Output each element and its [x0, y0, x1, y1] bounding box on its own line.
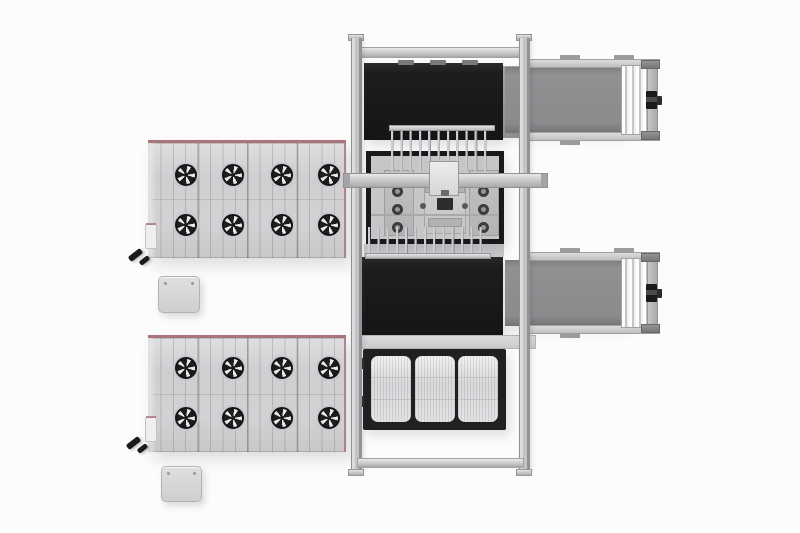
end-bracket: [641, 324, 660, 333]
center-pivot-icon: [462, 203, 468, 209]
fan-icon: [175, 214, 197, 236]
rail-tab: [560, 140, 580, 145]
end-bracket: [641, 253, 660, 262]
motor-band: [646, 97, 657, 102]
motor-band: [646, 290, 657, 295]
toolhead-detail: [441, 190, 449, 196]
cooling-panel-top: [148, 140, 346, 258]
rail-tab: [560, 55, 580, 60]
motor-shaft: [657, 96, 662, 105]
end-bracket: [641, 131, 660, 140]
suction-ring-icon: [478, 204, 489, 215]
fan-icon: [271, 214, 293, 236]
fan-icon: [318, 214, 340, 236]
end-bracket: [641, 60, 660, 69]
fan-icon: [318, 164, 340, 186]
pallet-station: [363, 349, 506, 430]
table-guide-rail: [371, 214, 499, 216]
rail-tab: [614, 248, 634, 253]
frame-bottom-beam: [357, 458, 524, 468]
control-box-bottom: [161, 466, 202, 502]
frame-left-rail: [351, 38, 362, 474]
roller-end-section: [621, 65, 648, 135]
clamp-bar-icon: [137, 443, 149, 454]
glass-panel: [458, 356, 498, 422]
center-pivot-icon: [420, 203, 426, 209]
comb-bar: [365, 253, 491, 259]
conveyor-tab: [462, 60, 478, 65]
motor-shaft: [657, 289, 662, 298]
screw-icon: [167, 472, 170, 475]
control-box-top: [158, 276, 200, 313]
fan-icon: [175, 164, 197, 186]
glass-panel: [371, 356, 411, 422]
fan-icon: [318, 357, 340, 379]
side-junction-box-top: [145, 224, 157, 249]
rail-tab: [560, 333, 580, 338]
fan-icon: [222, 164, 244, 186]
fan-icon: [222, 214, 244, 236]
rail-tab: [560, 248, 580, 253]
fan-icon: [222, 407, 244, 429]
fan-icon: [318, 407, 340, 429]
clamp-sensor-bottom: [126, 436, 154, 460]
fan-icon: [271, 164, 293, 186]
fan-icon: [175, 357, 197, 379]
screw-icon: [193, 472, 196, 475]
comb-tines: [368, 227, 489, 255]
glass-panel: [415, 356, 455, 422]
roller-end-section: [621, 258, 648, 328]
rail-tab: [614, 55, 634, 60]
conveyor-tab: [430, 60, 446, 65]
machine-line-render: [0, 0, 800, 533]
screw-icon: [164, 282, 167, 285]
suction-ring-icon: [392, 204, 403, 215]
fan-icon: [222, 357, 244, 379]
frame-top-beam: [357, 47, 524, 58]
cooling-panel-bottom: [148, 335, 346, 452]
center-bridge: [428, 218, 462, 227]
rail-foot: [516, 469, 532, 476]
fan-icon: [271, 357, 293, 379]
clamp-bar-icon: [139, 255, 151, 266]
toolhead-block: [437, 198, 453, 210]
fan-icon: [271, 407, 293, 429]
clamp-sensor-top: [128, 248, 156, 272]
buffer-black-conveyor: [362, 257, 503, 335]
screw-icon: [191, 282, 194, 285]
transfer-comb-lower: [365, 227, 491, 260]
conveyor-tab: [398, 60, 414, 65]
rail-foot: [348, 469, 364, 476]
frame-right-rail: [519, 38, 530, 474]
fan-icon: [175, 407, 197, 429]
